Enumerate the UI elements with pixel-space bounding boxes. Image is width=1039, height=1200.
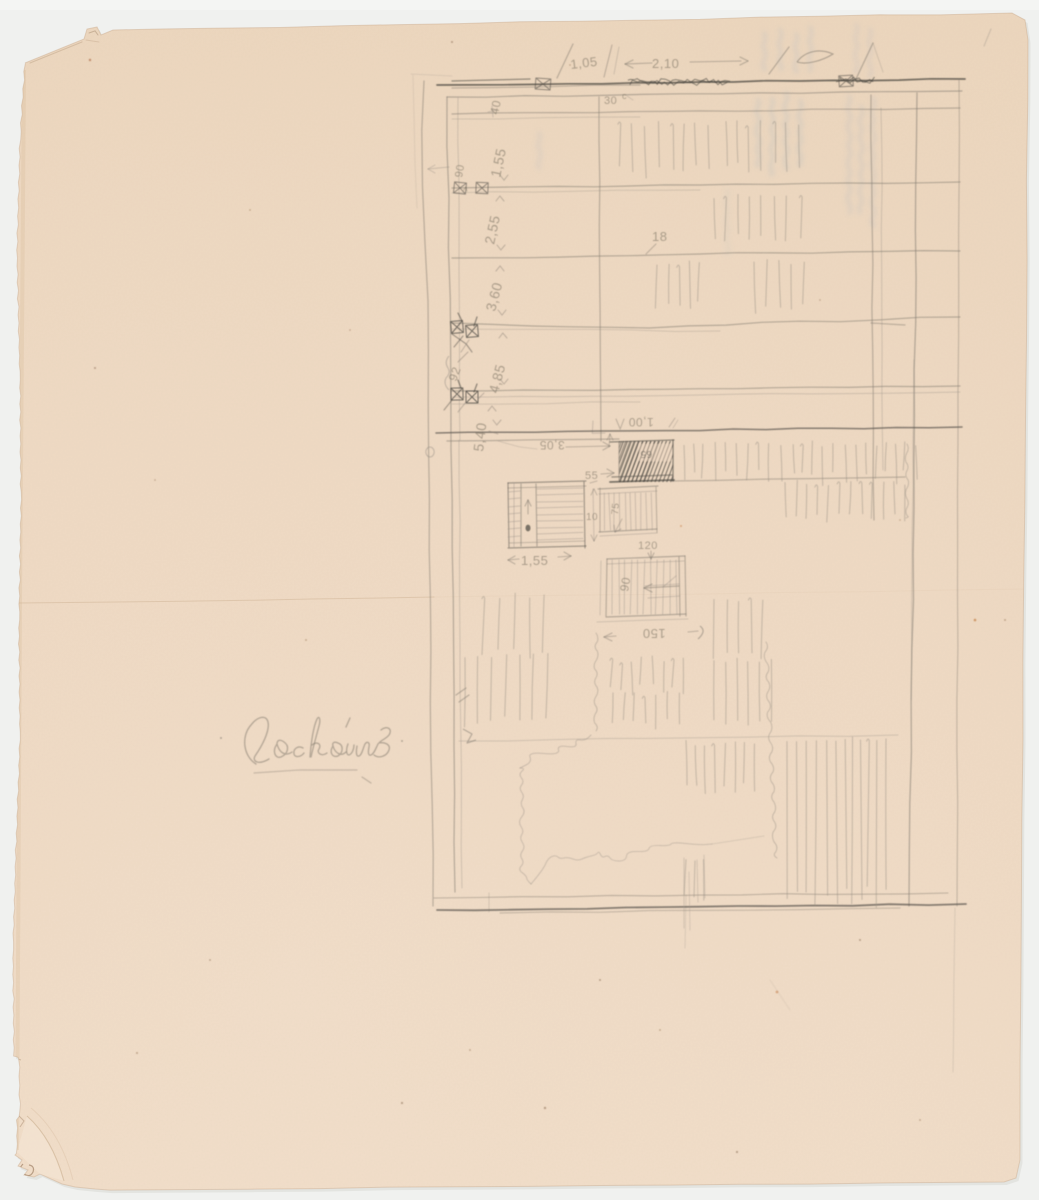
svg-text:1,55: 1,55 [521, 553, 548, 568]
svg-text:90: 90 [453, 163, 467, 178]
svg-text:30: 30 [604, 95, 617, 107]
svg-text:120: 120 [638, 540, 658, 552]
svg-text:c: c [622, 91, 627, 101]
svg-text:18: 18 [652, 229, 667, 244]
svg-text:1,00: 1,00 [628, 415, 653, 429]
svg-text:40: 40 [487, 99, 504, 116]
svg-text:150: 150 [642, 626, 665, 641]
svg-text:10: 10 [586, 512, 598, 523]
svg-text:55: 55 [585, 470, 598, 482]
svg-text:3,05: 3,05 [539, 438, 564, 452]
svg-text:90: 90 [617, 576, 633, 593]
svg-text:65: 65 [640, 448, 652, 459]
svg-text:2,10: 2,10 [652, 56, 679, 71]
svg-text:75: 75 [610, 502, 622, 515]
